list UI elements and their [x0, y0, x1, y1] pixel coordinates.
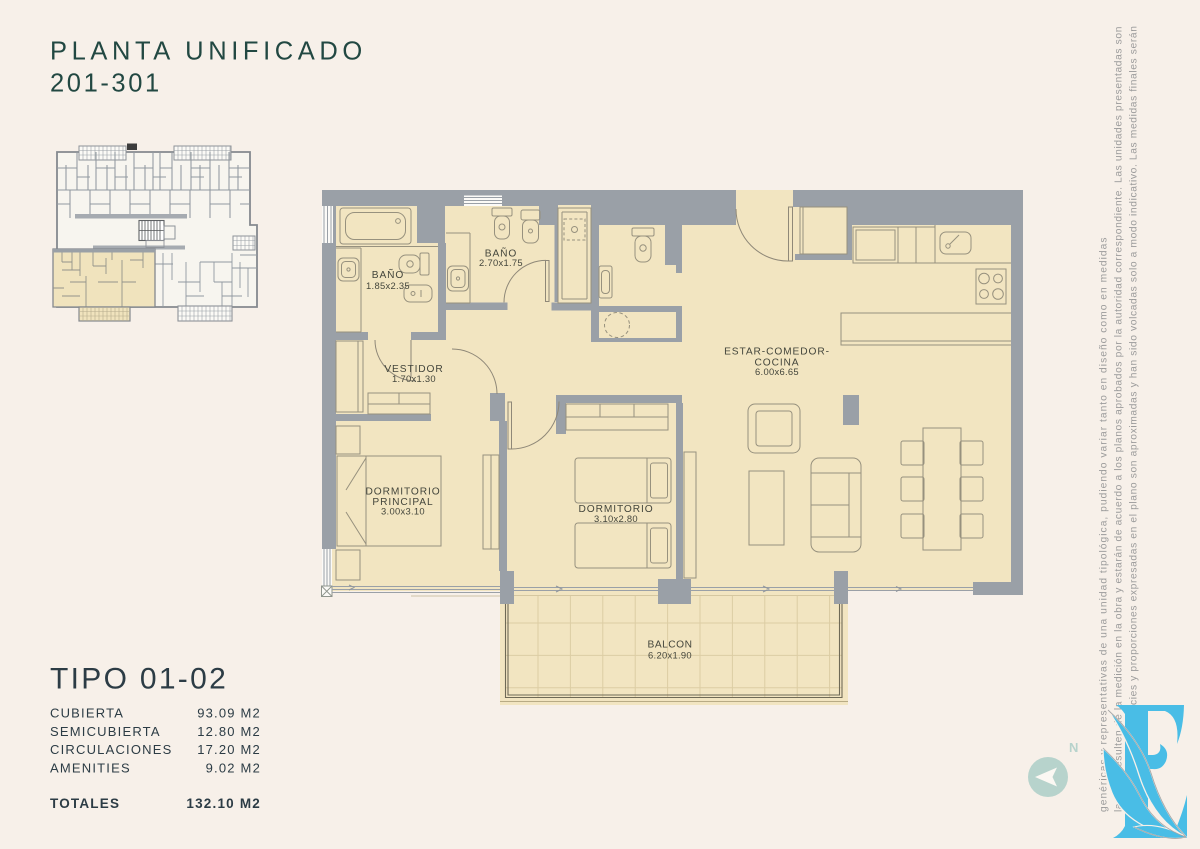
- svg-text:CUBIERTA: CUBIERTA: [50, 706, 124, 721]
- svg-text:genéricas y representativas de: genéricas y representativas de una unida…: [1099, 236, 1110, 812]
- svg-text:17.20 M2: 17.20 M2: [197, 742, 261, 757]
- svg-text:SEMICUBIERTA: SEMICUBIERTA: [50, 724, 161, 739]
- svg-text:N: N: [1069, 740, 1078, 755]
- svg-text:Las medidas, superficies y pro: Las medidas, superficies y proporciones …: [1129, 25, 1140, 812]
- svg-text:93.09 M2: 93.09 M2: [197, 706, 261, 721]
- svg-text:TOTALES: TOTALES: [50, 796, 120, 811]
- svg-text:3.00x3.10: 3.00x3.10: [381, 506, 425, 517]
- svg-text:AMENITIES: AMENITIES: [50, 760, 131, 775]
- svg-text:2.70x1.75: 2.70x1.75: [479, 257, 523, 268]
- svg-text:9.02 M2: 9.02 M2: [206, 760, 261, 775]
- svg-text:PLANTA UNIFICADO: PLANTA UNIFICADO: [50, 38, 367, 66]
- svg-text:6.00x6.65: 6.00x6.65: [755, 366, 799, 377]
- svg-text:ESTAR-COMEDOR-: ESTAR-COMEDOR-: [724, 347, 830, 358]
- svg-text:TIPO 01-02: TIPO 01-02: [50, 663, 228, 696]
- svg-text:1.85x2.35: 1.85x2.35: [366, 280, 410, 291]
- svg-text:6.20x1.90: 6.20x1.90: [648, 650, 692, 661]
- svg-text:CIRCULACIONES: CIRCULACIONES: [50, 742, 173, 757]
- svg-text:3.10x2.80: 3.10x2.80: [594, 513, 638, 524]
- svg-text:las que resulten de la medició: las que resulten de la medición en la ob…: [1114, 26, 1125, 812]
- svg-text:12.80 M2: 12.80 M2: [197, 724, 261, 739]
- svg-text:1.70x1.30: 1.70x1.30: [392, 373, 436, 384]
- svg-text:201-301: 201-301: [50, 70, 162, 98]
- svg-text:132.10 M2: 132.10 M2: [186, 796, 261, 811]
